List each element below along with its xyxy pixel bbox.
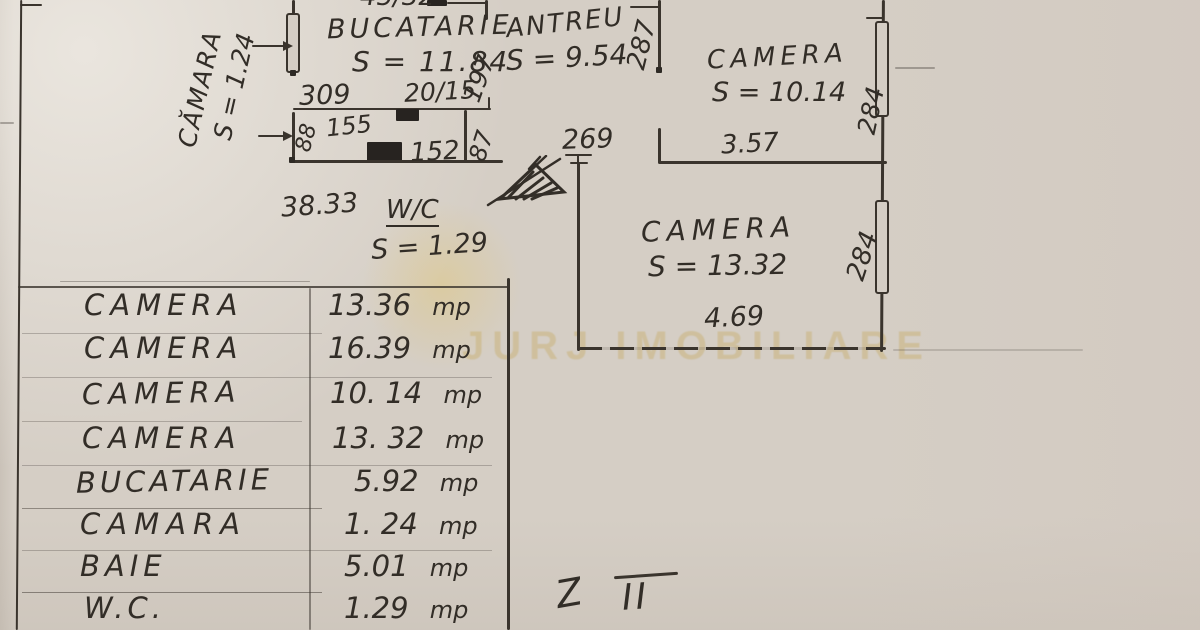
table-row-name: CAMERA bbox=[84, 334, 243, 363]
table-row-value: 10. 14 mp bbox=[330, 379, 482, 408]
table-row-name: W.C. bbox=[84, 594, 165, 623]
table-row-value: 5.01 mp bbox=[344, 552, 468, 581]
table-row-value: 13. 32 mp bbox=[332, 424, 484, 453]
area-label-camera-mid: S = 13.32 bbox=[648, 251, 788, 281]
tick bbox=[866, 17, 884, 19]
dim-357: 3.57 bbox=[720, 130, 779, 159]
dim-469: 4.69 bbox=[703, 302, 764, 332]
tick bbox=[0, 122, 14, 124]
wall bbox=[658, 128, 661, 163]
dim-3833: 38.33 bbox=[280, 189, 359, 221]
value: 16.39 bbox=[328, 331, 411, 365]
tick bbox=[488, 97, 490, 110]
room-label-antreu: ANTREU bbox=[505, 4, 626, 42]
note-z: Z bbox=[553, 572, 585, 614]
wall bbox=[292, 0, 295, 14]
unit: mp bbox=[439, 512, 478, 540]
room-label-camera-top: CAMERA bbox=[706, 40, 848, 73]
table-row-value: 16.39 mp bbox=[328, 334, 471, 363]
wall-end bbox=[656, 67, 662, 73]
unit: mp bbox=[440, 469, 479, 497]
page-border-left bbox=[16, 0, 22, 630]
top-partial-label: 45/32 bbox=[360, 0, 435, 10]
tick bbox=[20, 4, 42, 6]
table-row-name: CAMERA bbox=[82, 424, 241, 453]
table-row-value: 1. 24 mp bbox=[344, 510, 478, 539]
table-row-value: 1.29 mp bbox=[344, 594, 468, 623]
wall bbox=[658, 161, 887, 164]
area-label-antreu: S = 9.54 bbox=[505, 41, 628, 75]
unit: mp bbox=[445, 426, 484, 454]
table-row-name: CAMARA bbox=[80, 510, 247, 539]
area-label-wc: S = 1.29 bbox=[370, 229, 489, 264]
table-row-name: BAIE bbox=[80, 552, 167, 581]
wall bbox=[290, 160, 503, 163]
dimension-line bbox=[893, 349, 1083, 351]
unit: mp bbox=[443, 381, 482, 409]
wall bbox=[630, 6, 660, 8]
value: 1. 24 bbox=[344, 507, 418, 541]
unit: mp bbox=[430, 554, 469, 582]
room-label-bucatarie: BUCATARIE bbox=[327, 12, 514, 44]
north-arrow-icon bbox=[486, 155, 578, 207]
room-label-wc: W/C bbox=[386, 197, 439, 227]
unit: mp bbox=[432, 293, 471, 321]
dim-309: 309 bbox=[299, 81, 351, 110]
value: 13. 32 bbox=[332, 421, 424, 455]
table-row-separator bbox=[22, 592, 322, 593]
dimension-line bbox=[895, 67, 935, 69]
room-label-camera-mid: CAMERA bbox=[641, 213, 797, 246]
table-divider bbox=[309, 288, 311, 630]
value: 10. 14 bbox=[330, 376, 422, 410]
table-row-value: 5.92 mp bbox=[354, 467, 478, 496]
dim-155: 155 bbox=[325, 112, 373, 141]
value: 5.01 bbox=[344, 549, 409, 583]
door-threshold bbox=[367, 142, 402, 162]
floor-plan-sheet: JURJ IMOBILIARE bbox=[0, 0, 1200, 630]
table-border-right bbox=[507, 278, 510, 630]
unit: mp bbox=[430, 596, 469, 624]
wall-end bbox=[289, 157, 295, 163]
unit: mp bbox=[432, 336, 471, 364]
table-row-name: CAMERA bbox=[84, 291, 243, 320]
table-row-name: CAMERA bbox=[82, 378, 242, 410]
area-label-camera-top: S = 10.14 bbox=[712, 79, 846, 106]
dim-152: 152 bbox=[409, 138, 460, 167]
door-threshold bbox=[396, 109, 419, 121]
table-row-value: 13.36 mp bbox=[328, 291, 471, 320]
dimension-arrow bbox=[283, 41, 298, 51]
dim-287: 287 bbox=[623, 18, 660, 72]
value: 5.92 bbox=[354, 464, 419, 498]
wall-end bbox=[290, 70, 296, 76]
dim-88: 88 bbox=[293, 122, 321, 154]
dim-269: 269 bbox=[562, 125, 614, 154]
value: 1.29 bbox=[344, 591, 409, 625]
value: 13.36 bbox=[328, 288, 411, 322]
note-ii: II bbox=[621, 579, 651, 617]
wall-dashed bbox=[578, 347, 886, 350]
table-border-top-double bbox=[60, 281, 310, 282]
wall bbox=[447, 2, 487, 4]
table-row-name: BUCATARIE bbox=[76, 465, 273, 497]
